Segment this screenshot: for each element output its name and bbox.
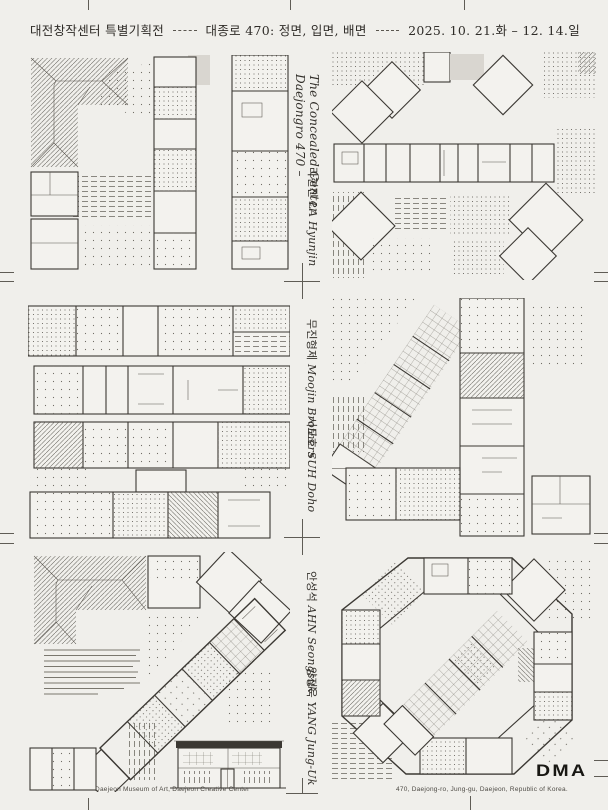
room [52,748,74,790]
room [544,52,596,98]
room [232,197,288,241]
footer-address: 470, Daejong-ro, Jung-gu, Daejeon, Repub… [396,786,568,793]
room [460,353,524,398]
room [468,558,512,594]
room [554,128,596,196]
crop-mark [594,760,608,761]
room [396,468,460,520]
artist-name-en: LA Hyunjin [306,202,319,267]
header-leader-line [173,30,196,31]
artist-name-ko: 양정욱 [305,667,318,702]
room [128,428,173,468]
room [243,366,290,414]
artist-name-en: SUH Doho [305,452,318,513]
building-elevation [170,741,286,788]
room [460,298,524,353]
header-leader-line [376,30,399,31]
floor-plan-panel-top-right [332,52,596,280]
room [31,172,78,216]
room [34,422,83,468]
room [168,492,218,538]
dot-field [528,306,588,366]
crop-mark [470,796,471,810]
crop-mark [290,0,291,10]
artist-credit-suh-doho: 서도호 SUH Doho [304,417,320,512]
room [113,492,168,538]
lined-room [394,198,446,232]
room [28,306,76,356]
window-grid [183,752,213,765]
room [233,306,290,332]
room [534,632,572,664]
shutter [240,771,270,786]
crop-mark [594,543,608,544]
floor-plan-drawing [332,52,596,280]
room [154,87,196,119]
caption-text-block [44,650,140,694]
room [452,240,504,274]
room [218,422,290,468]
crop-mark [88,798,89,810]
header-dates: 2025. 10. 21.화 – 12. 14.일 [408,20,580,39]
crop-mark [0,543,14,544]
crop-mark [0,281,14,282]
room [534,692,572,720]
room [233,332,290,356]
room [76,306,123,356]
room [346,468,396,520]
artist-credit-yang-jung-uk: 양정욱 YANG Jung-Uk [304,667,320,786]
hipped-roof [31,58,128,167]
artist-name-ko: 라현진 [306,167,319,202]
room [31,219,78,269]
room [460,494,524,536]
floor-plan-panel-digit-2 [28,552,290,792]
registration-crosshair [286,793,318,794]
crop-mark [594,272,608,273]
crop-mark [594,281,608,282]
room [342,680,380,716]
floor-plan-panel-top-left [28,55,290,280]
shutter [182,771,214,786]
floor-plan-panel-digit-4 [332,298,596,543]
floor-plan-panel-middle-left [28,300,290,540]
artist-name-ko: 무진형제 [305,319,318,364]
dma-logo: DMA [536,761,587,781]
header-exhibition-label: 대전창작센터 특별기획전 [30,20,164,39]
central-diagonal-wing [384,611,528,755]
crop-mark [0,272,14,273]
room [83,428,128,468]
room [450,194,512,234]
floor-plan-panel-digit-0 [332,552,596,787]
header: 대전창작센터 특별기획전 대종로 470: 정면, 입면, 배면 2025. 1… [30,20,580,39]
room [30,492,113,538]
room [342,610,380,644]
hipped-roof [34,556,146,644]
roof-band [176,741,282,748]
room [154,233,196,269]
room [232,151,288,197]
spine-title-line1: Daejongro 470 – [293,74,307,177]
room [34,366,83,414]
artist-name-ko: 안성석 [305,571,318,606]
crop-mark [0,533,14,534]
crop-mark [594,776,608,777]
room [424,52,450,82]
crop-mark [464,0,465,10]
floor-plan-drawing [28,552,290,792]
hall [83,225,163,269]
floor-plan-drawing [332,552,596,787]
window-grid [232,752,262,765]
floor-plan-drawing [332,298,596,543]
room [232,55,288,91]
artist-credit-la-hyunjin: 라현진 LA Hyunjin [305,167,321,266]
room [136,470,186,492]
room [150,558,198,580]
dot-field [244,468,290,490]
room [372,238,430,274]
gray-block [450,54,484,80]
room [158,306,233,356]
floor-plan-drawing [28,55,290,280]
floor-plan-drawing [28,300,290,540]
crop-mark [88,0,89,10]
room [154,149,196,191]
crop-mark [594,533,608,534]
registration-crosshair [284,281,320,282]
footer-venue: Daejeon Museum of Art, Daejeon Creative … [95,786,250,793]
artist-name-ko: 서도호 [305,417,318,452]
registration-crosshair [302,778,303,794]
header-poster-title: 대종로 470: 정면, 입면, 배면 [206,20,367,39]
room [532,476,590,534]
artist-name-en: YANG Jung-Uk [305,702,318,786]
